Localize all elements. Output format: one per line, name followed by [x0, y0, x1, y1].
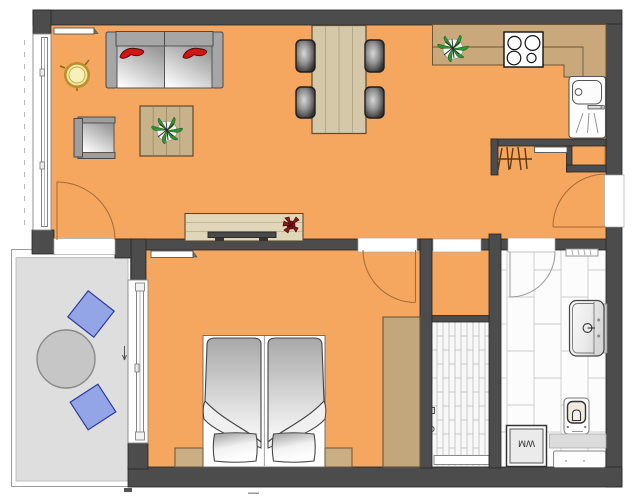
svg-text:WM: WM [518, 438, 535, 449]
